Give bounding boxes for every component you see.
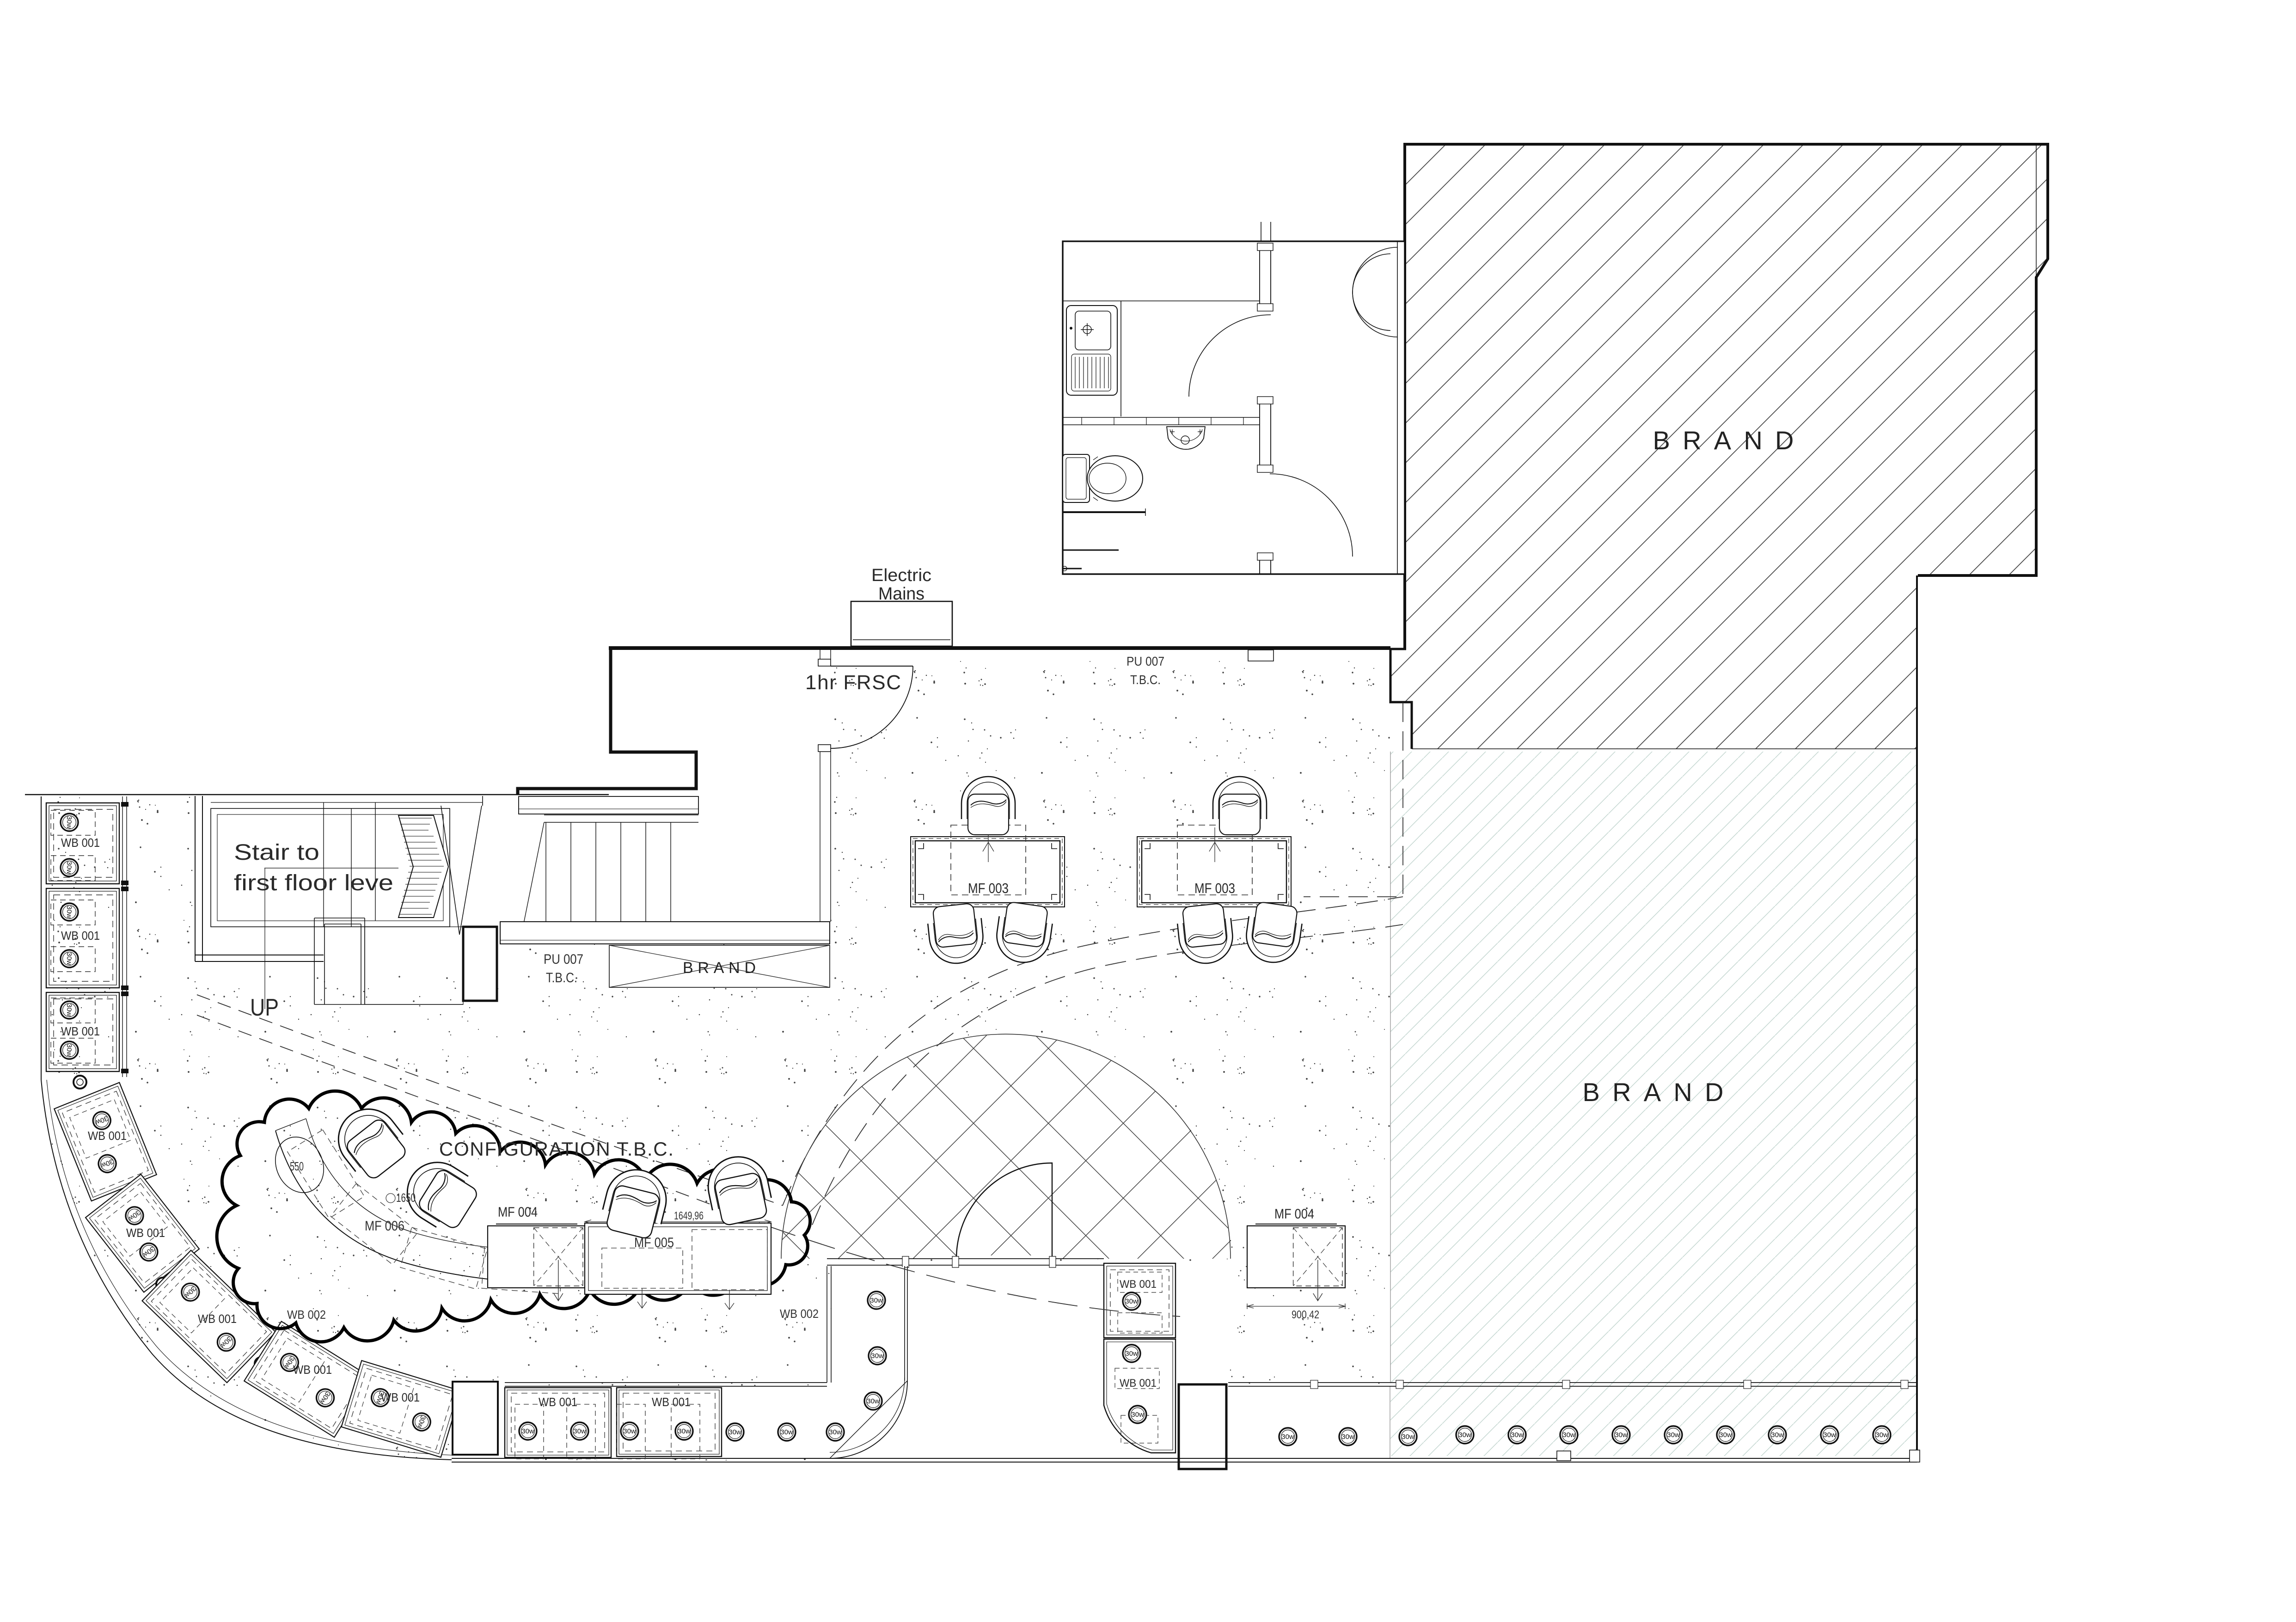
svg-text:MF 004: MF 004 [498,1205,538,1220]
svg-text:1649,96: 1649,96 [674,1210,704,1222]
svg-text:MF 003: MF 003 [968,880,1009,896]
svg-text:30w: 30w [729,1428,741,1436]
svg-text:30w: 30w [870,1297,883,1304]
svg-text:30w: 30w [65,1004,73,1016]
svg-text:30w: 30w [1562,1431,1575,1439]
svg-text:WB 002: WB 002 [780,1307,819,1321]
svg-text:MF 004: MF 004 [1274,1206,1314,1222]
svg-text:30w: 30w [1341,1433,1354,1441]
svg-text:30w: 30w [1402,1433,1414,1441]
svg-text:30w: 30w [1458,1431,1471,1439]
svg-text:30w: 30w [573,1427,586,1435]
svg-text:T.B.C.: T.B.C. [546,970,577,985]
svg-text:30w: 30w [829,1428,842,1436]
svg-text:UP: UP [250,994,279,1021]
svg-text:WB 001: WB 001 [1120,1377,1157,1389]
svg-text:MF 005: MF 005 [634,1235,674,1250]
svg-text:PU 007: PU 007 [1127,654,1164,668]
svg-text:30w: 30w [1875,1431,1888,1439]
svg-text:30w: 30w [1667,1431,1680,1439]
svg-text:WB 001: WB 001 [88,1129,127,1143]
svg-text:1650: 1650 [396,1191,416,1205]
svg-text:WB 002: WB 002 [287,1308,326,1322]
svg-text:30w: 30w [780,1428,793,1436]
svg-text:WB 001: WB 001 [293,1363,332,1377]
svg-text:30w: 30w [1719,1431,1732,1439]
svg-text:30w: 30w [65,952,73,965]
svg-text:30w: 30w [1615,1431,1628,1439]
svg-text:30w: 30w [1771,1431,1784,1439]
svg-text:WB 001: WB 001 [381,1390,420,1404]
svg-text:WB 001: WB 001 [61,1024,100,1038]
svg-text:550: 550 [290,1159,304,1173]
svg-text:30w: 30w [65,816,73,829]
svg-text:WB 001: WB 001 [126,1226,165,1240]
svg-text:first floor leve: first floor leve [234,871,393,895]
svg-text:30w: 30w [1511,1431,1524,1439]
svg-text:1hr FRSC: 1hr FRSC [805,671,901,694]
svg-text:30w: 30w [871,1352,884,1360]
svg-text:30w: 30w [521,1427,534,1435]
svg-text:PU 007: PU 007 [544,952,583,967]
svg-text:30w: 30w [65,861,73,874]
svg-text:WB 001: WB 001 [539,1395,577,1409]
svg-text:WB 001: WB 001 [652,1395,691,1409]
svg-text:30w: 30w [1281,1433,1294,1441]
svg-text:Stair to: Stair to [234,840,319,865]
svg-text:30w: 30w [1125,1298,1138,1305]
svg-text:T.B.C.: T.B.C. [1130,673,1161,687]
svg-text:WB 001: WB 001 [61,929,100,943]
svg-text:900,42: 900,42 [1292,1309,1319,1321]
svg-text:30w: 30w [1131,1411,1144,1419]
svg-text:CONFIGURATION T.B.C.: CONFIGURATION T.B.C. [439,1138,673,1160]
svg-text:30w: 30w [678,1427,691,1435]
svg-text:MF 003: MF 003 [1194,880,1235,896]
svg-text:30w: 30w [867,1397,880,1405]
svg-text:MF 006: MF 006 [365,1218,404,1234]
svg-text:WB 001: WB 001 [198,1312,237,1326]
svg-text:30w: 30w [1125,1350,1138,1358]
svg-text:Mains: Mains [878,584,925,604]
svg-text:WB 001: WB 001 [61,836,100,850]
svg-text:WB 001: WB 001 [1120,1278,1157,1291]
svg-text:30w: 30w [65,1044,73,1057]
svg-text:30w: 30w [65,906,73,918]
svg-text:30w: 30w [1823,1431,1836,1439]
svg-text:Electric: Electric [871,566,931,585]
svg-text:30w: 30w [623,1427,636,1435]
